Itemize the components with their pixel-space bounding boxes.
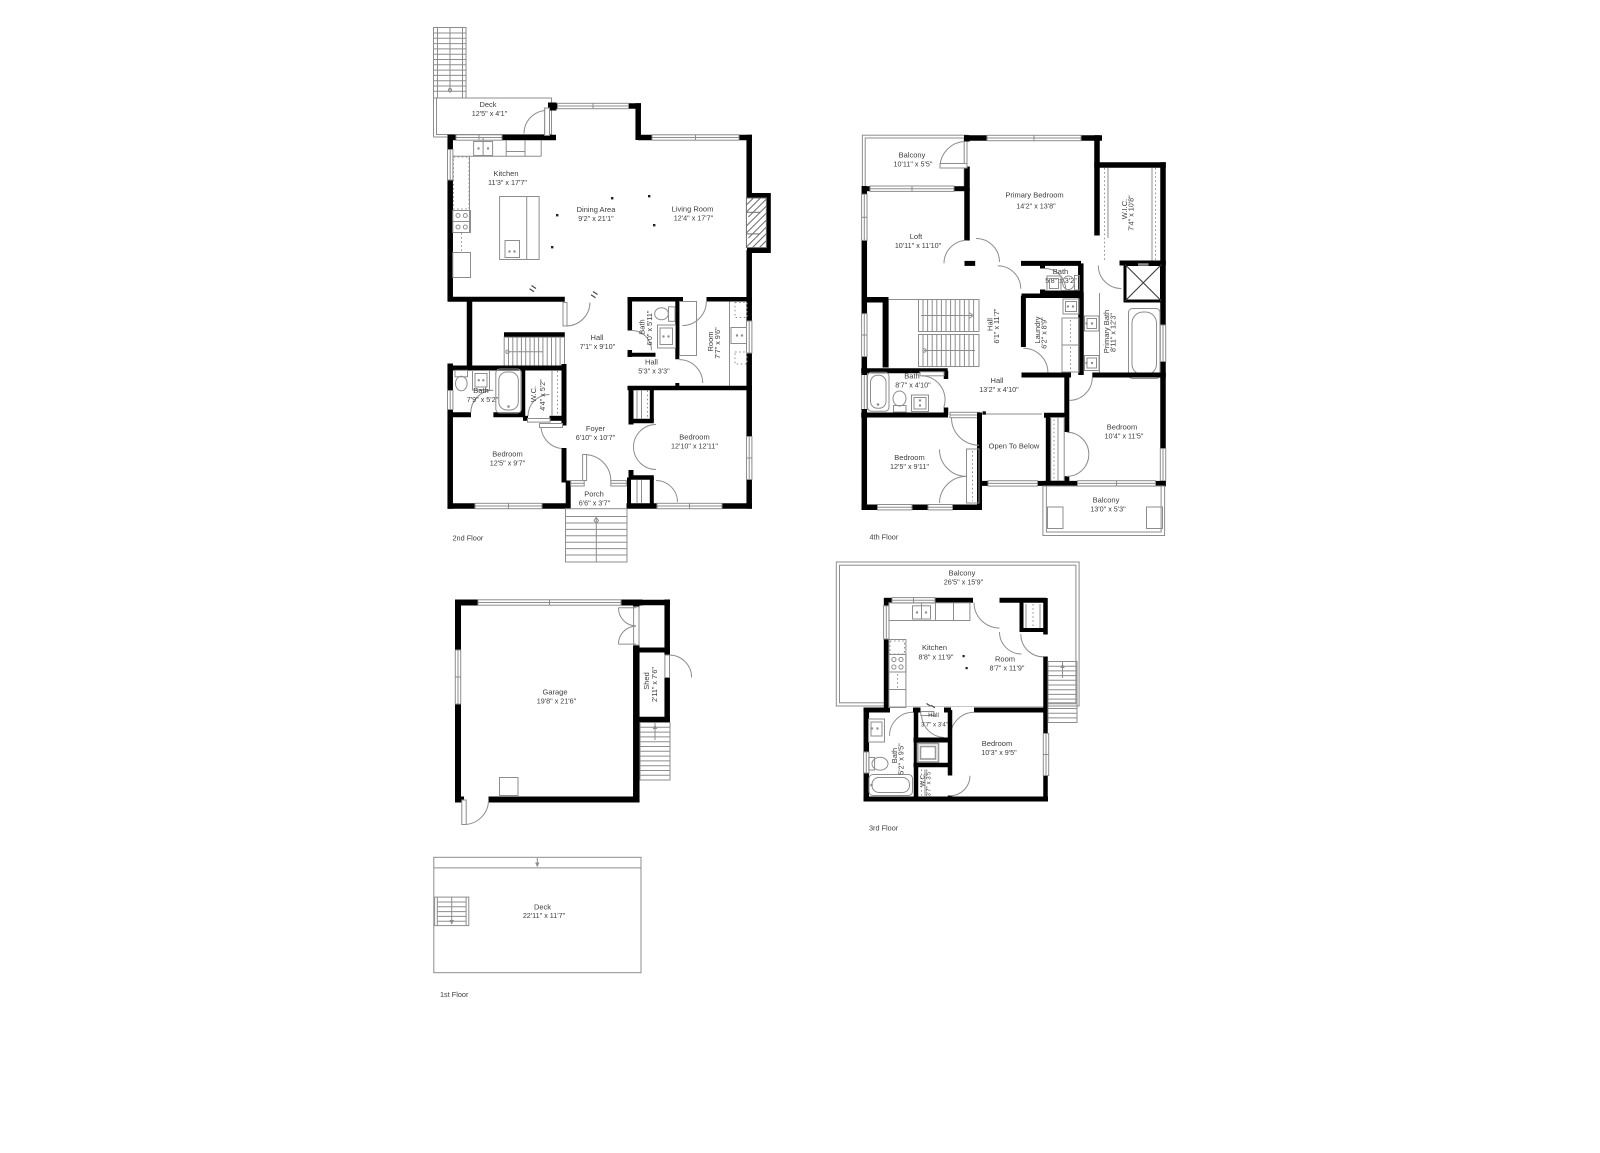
svg-text:6'0" x 5'11": 6'0" x 5'11"	[645, 310, 654, 345]
svg-text:Kitchen: Kitchen	[493, 169, 518, 178]
svg-text:26'5" x 15'9": 26'5" x 15'9"	[944, 578, 984, 587]
svg-text:10'4" x 11'5": 10'4" x 11'5"	[1105, 432, 1144, 441]
svg-text:Hall: Hall	[991, 376, 1004, 385]
svg-text:Hall: Hall	[928, 712, 939, 719]
svg-text:Porch: Porch	[584, 490, 604, 499]
svg-text:Foyer: Foyer	[586, 424, 606, 433]
svg-text:6'10" x 10'7": 6'10" x 10'7"	[576, 433, 616, 442]
svg-text:8'11" x 12'3": 8'11" x 12'3"	[1109, 313, 1118, 352]
svg-text:3'7" x 3'5": 3'7" x 3'5"	[926, 769, 933, 796]
svg-text:Loft: Loft	[910, 232, 923, 241]
svg-text:5'2" x 9'5": 5'2" x 9'5"	[897, 743, 906, 775]
svg-text:10'11" x 11'10": 10'11" x 11'10"	[895, 241, 942, 250]
svg-text:2nd Floor: 2nd Floor	[453, 534, 484, 543]
svg-text:Balcony: Balcony	[949, 569, 976, 578]
svg-text:8'8" x 11'9": 8'8" x 11'9"	[919, 653, 954, 662]
svg-text:Bedroom: Bedroom	[894, 453, 924, 462]
svg-text:Balcony: Balcony	[1093, 496, 1120, 505]
svg-text:2'11" x 7'6": 2'11" x 7'6"	[650, 667, 659, 702]
svg-text:6'2" x 8'9": 6'2" x 8'9"	[1040, 317, 1049, 349]
svg-text:Hall: Hall	[645, 358, 658, 367]
svg-text:12'5" x 9'7": 12'5" x 9'7"	[490, 459, 526, 468]
svg-text:Kitchen: Kitchen	[922, 643, 947, 652]
svg-text:8'7" x 4'10": 8'7" x 4'10"	[895, 381, 931, 390]
svg-text:Bath: Bath	[473, 386, 488, 395]
svg-text:12'4" x 17'7": 12'4" x 17'7"	[674, 214, 714, 223]
svg-text:19'8" x 21'6": 19'8" x 21'6"	[537, 697, 577, 706]
svg-text:7'4" x 10'8": 7'4" x 10'8"	[1127, 195, 1136, 231]
svg-text:4th Floor: 4th Floor	[870, 533, 899, 542]
svg-text:11'3" x 17'7": 11'3" x 17'7"	[488, 178, 527, 187]
svg-text:12'5" x 9'11": 12'5" x 9'11"	[890, 462, 929, 471]
svg-text:Bedroom: Bedroom	[679, 433, 709, 442]
svg-text:Open To Below: Open To Below	[989, 442, 1040, 451]
svg-text:12'10" x 12'11": 12'10" x 12'11"	[671, 442, 718, 451]
svg-text:1st Floor: 1st Floor	[440, 990, 469, 999]
svg-text:7'7" x 9'6": 7'7" x 9'6"	[713, 327, 722, 359]
svg-text:Primary Bedroom: Primary Bedroom	[1005, 191, 1063, 200]
svg-text:Bath: Bath	[904, 372, 919, 381]
svg-text:9'2" x 21'1": 9'2" x 21'1"	[578, 214, 614, 223]
svg-text:Bath: Bath	[1053, 267, 1068, 276]
svg-text:13'2" x 4'10": 13'2" x 4'10"	[979, 385, 1019, 394]
svg-text:7'9" x 5'2": 7'9" x 5'2"	[467, 395, 499, 404]
svg-text:5'3" x 3'3": 5'3" x 3'3"	[638, 367, 670, 376]
svg-text:Bedroom: Bedroom	[492, 450, 522, 459]
svg-text:7'1" x 9'10": 7'1" x 9'10"	[580, 342, 616, 351]
svg-text:Dining Area: Dining Area	[577, 205, 617, 214]
svg-text:10'11" x 5'5": 10'11" x 5'5"	[894, 160, 933, 169]
svg-text:6'1" x 11'7": 6'1" x 11'7"	[992, 308, 1001, 343]
svg-text:Balcony: Balcony	[899, 151, 926, 160]
svg-text:Bedroom: Bedroom	[982, 739, 1012, 748]
svg-text:10'3" x 9'5": 10'3" x 9'5"	[981, 748, 1017, 757]
svg-text:13'0" x 5'3": 13'0" x 5'3"	[1090, 505, 1126, 514]
svg-text:22'11" x 11'7": 22'11" x 11'7"	[523, 911, 566, 920]
svg-text:3'7" x 3'4": 3'7" x 3'4"	[921, 722, 948, 729]
svg-text:Garage: Garage	[542, 688, 567, 697]
svg-text:Room: Room	[995, 655, 1015, 664]
svg-text:W.C.: W.C.	[529, 386, 538, 402]
svg-text:Bedroom: Bedroom	[1107, 423, 1137, 432]
svg-text:12'5" x 4'1": 12'5" x 4'1"	[472, 109, 508, 118]
svg-text:14'2" x 13'8": 14'2" x 13'8"	[1016, 202, 1056, 211]
svg-text:Deck: Deck	[479, 100, 496, 109]
svg-text:8'7" x 11'9": 8'7" x 11'9"	[990, 664, 1025, 673]
svg-text:3rd Floor: 3rd Floor	[869, 824, 899, 833]
svg-text:Hall: Hall	[591, 333, 604, 342]
svg-text:6'6" x 3'7": 6'6" x 3'7"	[579, 499, 611, 508]
svg-text:Living Room: Living Room	[672, 205, 714, 214]
svg-text:4'4" x 5'2": 4'4" x 5'2"	[538, 379, 547, 411]
